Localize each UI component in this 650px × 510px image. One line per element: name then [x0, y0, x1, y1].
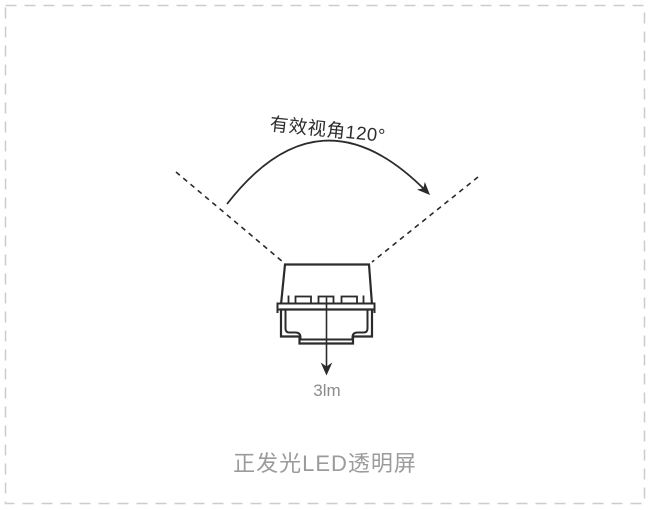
- led-viewing-angle-diagram: [0, 0, 650, 510]
- page-title: 正发光LED透明屏: [0, 446, 650, 478]
- diagram-canvas: 有效视角120° 3lm 正发光LED透明屏: [0, 0, 650, 510]
- viewing-angle-line-left: [176, 172, 283, 262]
- luminous-flux-label: 3lm: [0, 381, 650, 401]
- dashed-page-border: [6, 6, 645, 504]
- viewing-angle-arc: [227, 141, 426, 204]
